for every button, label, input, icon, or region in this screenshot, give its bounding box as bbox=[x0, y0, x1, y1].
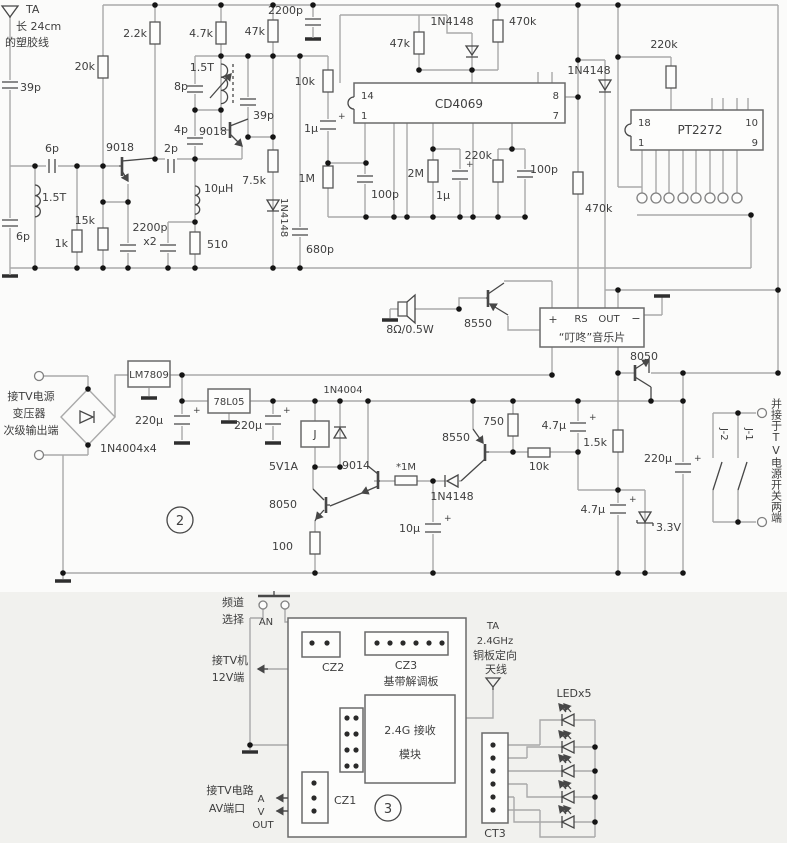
label-4.7u: 4.7µ bbox=[581, 503, 606, 516]
section-badge-2: 2 bbox=[167, 507, 193, 533]
ic-pt2272-label: PT2272 bbox=[677, 123, 722, 137]
label-1n4148: 1N4148 bbox=[278, 198, 289, 237]
polarity-plus: + bbox=[193, 406, 201, 416]
connector-cz3 bbox=[365, 632, 448, 655]
chip-pin-rs: RS bbox=[574, 314, 587, 325]
music-chip: + RS OUT − “叮咚”音乐片 bbox=[540, 308, 644, 347]
label-j2: J-2 bbox=[718, 427, 729, 441]
label-out: OUT bbox=[252, 820, 274, 831]
label-2p: 2p bbox=[164, 142, 178, 155]
label-10k: 10k bbox=[295, 75, 316, 88]
label-470k: 470k bbox=[509, 15, 537, 28]
switch-note: 并接于TV电源开关两端 bbox=[770, 397, 783, 524]
label-1n4148: 1N4148 bbox=[430, 15, 473, 28]
label-10uH: 10µH bbox=[204, 182, 233, 195]
label-channel-1: 频道 bbox=[222, 595, 244, 609]
input-note-1: 接TV电源 bbox=[7, 389, 54, 403]
input-note-2: 变压器 bbox=[13, 406, 46, 420]
label-750: 750 bbox=[483, 415, 504, 428]
label-channel-2: 选择 bbox=[222, 612, 244, 626]
antenna-desc-1: 长 24cm bbox=[16, 20, 61, 33]
label-220u: 220µ bbox=[644, 452, 672, 465]
label-1n4148: 1N4148 bbox=[567, 64, 610, 77]
label-8050: 8050 bbox=[269, 498, 297, 511]
label-1n4004: 1N4004 bbox=[323, 385, 362, 396]
svg-text:2: 2 bbox=[176, 514, 184, 529]
svg-text:78L05: 78L05 bbox=[213, 397, 244, 408]
label-6p: 6p bbox=[16, 230, 30, 243]
schematic-page: TA 长 24cm 的塑胶线 + + bbox=[0, 0, 787, 843]
label-cz1: CZ1 bbox=[334, 794, 356, 807]
label-220k: 220k bbox=[650, 38, 678, 51]
label-8050: 8050 bbox=[630, 350, 658, 363]
svg-text:LM7809: LM7809 bbox=[129, 370, 169, 381]
relay-contacts: J-2 J-1 bbox=[713, 409, 767, 527]
label-ant-3: 铜板定向 bbox=[473, 648, 517, 662]
svg-text:J: J bbox=[312, 428, 316, 441]
transistor-8550-1 bbox=[486, 283, 508, 315]
label-7.5k: 7.5k bbox=[242, 174, 266, 187]
regulator-lm7809: LM7809 bbox=[128, 361, 170, 387]
bridge-rectifier bbox=[61, 389, 115, 445]
label-470k: 470k bbox=[585, 202, 613, 215]
label-tv12-2: 12V端 bbox=[212, 671, 245, 684]
label-v: V bbox=[258, 807, 265, 818]
label-2.2k: 2.2k bbox=[123, 27, 147, 40]
music-chip-section: + RS OUT − “叮咚”音乐片 8Ω/0.5W 8550 bbox=[382, 281, 670, 375]
label-av-1: 接TV电路 bbox=[206, 784, 253, 797]
label-ledx5: LEDx5 bbox=[556, 687, 591, 700]
label-1m-star: *1M bbox=[396, 462, 416, 473]
label-9018: 9018 bbox=[199, 125, 227, 138]
label-100: 100 bbox=[272, 540, 293, 553]
speaker-icon bbox=[398, 295, 415, 323]
module-connector bbox=[340, 708, 363, 772]
label-220u: 220µ bbox=[135, 414, 163, 427]
label-220u: 220µ bbox=[234, 419, 262, 432]
rf-module: 2.4G 接收 模块 bbox=[365, 695, 455, 783]
label-10k: 10k bbox=[529, 460, 550, 473]
polarity-plus: + bbox=[629, 495, 637, 505]
label-bridge: 1N4004x4 bbox=[100, 442, 157, 455]
label-15k: 15k bbox=[75, 214, 96, 227]
label-5v1a: 5V1A bbox=[269, 460, 299, 473]
label-1u: 1µ bbox=[304, 122, 318, 135]
label-1.5T: 1.5T bbox=[190, 61, 214, 74]
label-100p: 100p bbox=[371, 188, 399, 201]
label-100p: 100p bbox=[530, 163, 558, 176]
ic-pt2272: PT2272 18 1 10 9 bbox=[625, 110, 763, 150]
pin-label: 7 bbox=[553, 111, 559, 122]
polarity-plus: + bbox=[338, 112, 346, 122]
rf-decoder-section: TA 长 24cm 的塑胶线 + + bbox=[1, 2, 781, 490]
label-2M: 2M bbox=[408, 167, 425, 180]
relay-j: J bbox=[301, 421, 329, 447]
pin-label: 8 bbox=[553, 91, 559, 102]
label-ct3: CT3 bbox=[484, 827, 505, 840]
pin-label: 18 bbox=[638, 118, 651, 129]
polarity-plus: + bbox=[444, 514, 452, 524]
label-8p: 8p bbox=[174, 80, 188, 93]
chip-pin-minus: − bbox=[631, 312, 640, 325]
label-3.3v: 3.3V bbox=[656, 521, 681, 534]
label-cz2: CZ2 bbox=[322, 661, 344, 674]
pin-label: 1 bbox=[638, 138, 644, 149]
label-47k: 47k bbox=[390, 37, 411, 50]
chip-pin-plus: + bbox=[548, 313, 557, 326]
diode-1n4148 bbox=[445, 475, 458, 487]
transistor-9018-2 bbox=[230, 119, 248, 146]
pin-label: 10 bbox=[745, 118, 758, 129]
label-9018: 9018 bbox=[106, 141, 134, 154]
diodes bbox=[267, 46, 611, 211]
label-4.7k: 4.7k bbox=[189, 27, 213, 40]
label-20k: 20k bbox=[75, 60, 96, 73]
chip-pin-out: OUT bbox=[598, 314, 620, 325]
svg-text:模块: 模块 bbox=[399, 748, 421, 761]
label-220k: 220k bbox=[465, 149, 493, 162]
regulator-78l05: 78L05 bbox=[208, 389, 250, 413]
power-section: 接TV电源 变压器 次级输出端 1N4004x4 LM7809 78L05 + … bbox=[4, 350, 783, 581]
transistor-8050-left bbox=[313, 489, 330, 521]
label-39p: 39p bbox=[253, 109, 274, 122]
label-board: 基带解调板 bbox=[384, 674, 439, 688]
label-2.4ghz: 2.4GHz bbox=[477, 636, 513, 647]
label-j1: J-1 bbox=[743, 427, 754, 441]
label-510: 510 bbox=[207, 238, 228, 251]
label-8550: 8550 bbox=[464, 317, 492, 330]
connector-cz2 bbox=[302, 632, 340, 657]
label-39p: 39p bbox=[20, 81, 41, 94]
input-note-3: 次级输出端 bbox=[4, 423, 59, 437]
polarity-plus: + bbox=[694, 454, 702, 464]
chip-name: “叮咚”音乐片 bbox=[559, 330, 625, 344]
label-1n4148: 1N4148 bbox=[430, 490, 473, 503]
label-680p: 680p bbox=[306, 243, 334, 256]
pin-label: 9 bbox=[752, 138, 758, 149]
circuit-schematic: TA 长 24cm 的塑胶线 + + bbox=[0, 0, 787, 843]
label-av-2: AV端口 bbox=[209, 802, 245, 815]
polarity-plus: + bbox=[283, 406, 291, 416]
svg-text:2.4G 接收: 2.4G 接收 bbox=[384, 723, 436, 737]
label-an: AN bbox=[259, 617, 273, 628]
connector-cz1 bbox=[302, 772, 328, 823]
polarity-plus: + bbox=[589, 413, 597, 423]
label-1k: 1k bbox=[55, 237, 69, 250]
label-1u: 1µ bbox=[436, 189, 450, 202]
ac-input-terminal bbox=[35, 451, 44, 460]
label-47k: 47k bbox=[245, 25, 266, 38]
label-a: A bbox=[258, 794, 265, 805]
label-1.5k: 1.5k bbox=[583, 436, 607, 449]
label-10u: 10µ bbox=[399, 522, 420, 535]
ac-input-terminal bbox=[35, 372, 44, 381]
pt2272-output-terminals bbox=[637, 193, 742, 203]
label-x2: x2 bbox=[143, 235, 157, 248]
transistor-9014 bbox=[330, 466, 380, 506]
antenna-label: TA bbox=[25, 3, 40, 16]
label-ta: TA bbox=[486, 621, 499, 632]
pin-label: 1 bbox=[361, 111, 367, 122]
label-cz3: CZ3 bbox=[395, 659, 417, 672]
ic-cd4069-label: CD4069 bbox=[435, 97, 483, 111]
label-ant-4: 天线 bbox=[485, 662, 507, 676]
transistor-9018-1 bbox=[119, 157, 155, 181]
label-speaker: 8Ω/0.5W bbox=[386, 323, 434, 336]
label-6p: 6p bbox=[45, 142, 59, 155]
label-4.7u: 4.7µ bbox=[542, 419, 567, 432]
antenna-desc-2: 的塑胶线 bbox=[5, 35, 49, 49]
label-9014: 9014 bbox=[342, 459, 370, 472]
pin-label: 14 bbox=[361, 91, 374, 102]
label-1M: 1M bbox=[299, 172, 316, 185]
antenna-icon bbox=[2, 6, 18, 18]
transistor-8050-top bbox=[635, 360, 651, 401]
label-tv12-1: 接TV机 bbox=[212, 653, 248, 667]
label-4p: 4p bbox=[174, 123, 188, 136]
label-8550: 8550 bbox=[442, 431, 470, 444]
connector-ct3 bbox=[482, 733, 508, 823]
svg-text:3: 3 bbox=[384, 802, 392, 817]
label-2200p-x2: 2200p bbox=[133, 221, 168, 234]
resistors bbox=[72, 20, 676, 254]
label-1.5T: 1.5T bbox=[42, 191, 66, 204]
ic-cd4069: CD4069 14 1 8 7 bbox=[348, 83, 565, 123]
